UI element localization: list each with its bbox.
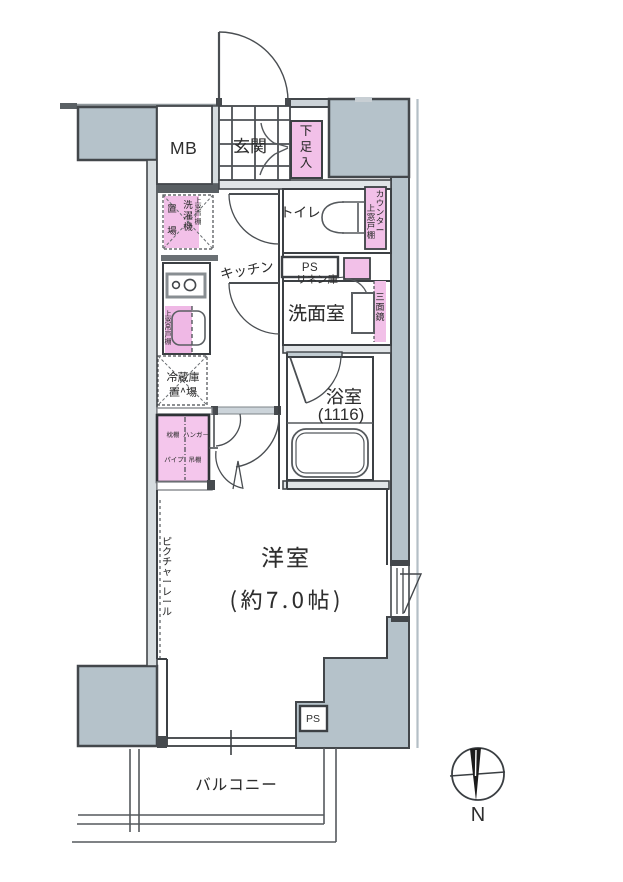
svg-text:(1116): (1116) (318, 405, 365, 424)
svg-text:MB: MB (170, 138, 197, 158)
svg-text:N: N (471, 804, 485, 826)
svg-text:PS: PS (302, 262, 318, 274)
svg-text:PS: PS (306, 713, 320, 725)
